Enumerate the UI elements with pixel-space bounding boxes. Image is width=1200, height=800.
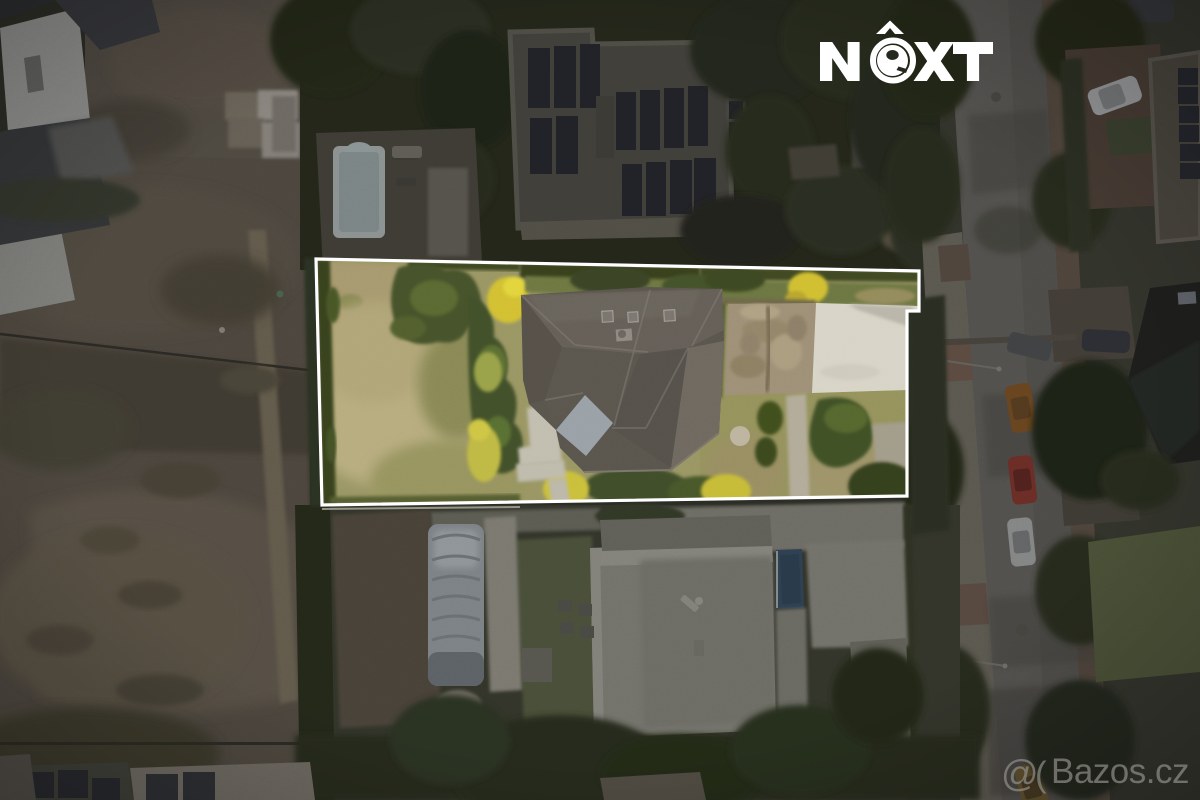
svg-text:(: (	[1035, 755, 1047, 794]
svg-text:Bazos.cz: Bazos.cz	[1051, 752, 1189, 791]
svg-text:@: @	[1001, 753, 1039, 794]
